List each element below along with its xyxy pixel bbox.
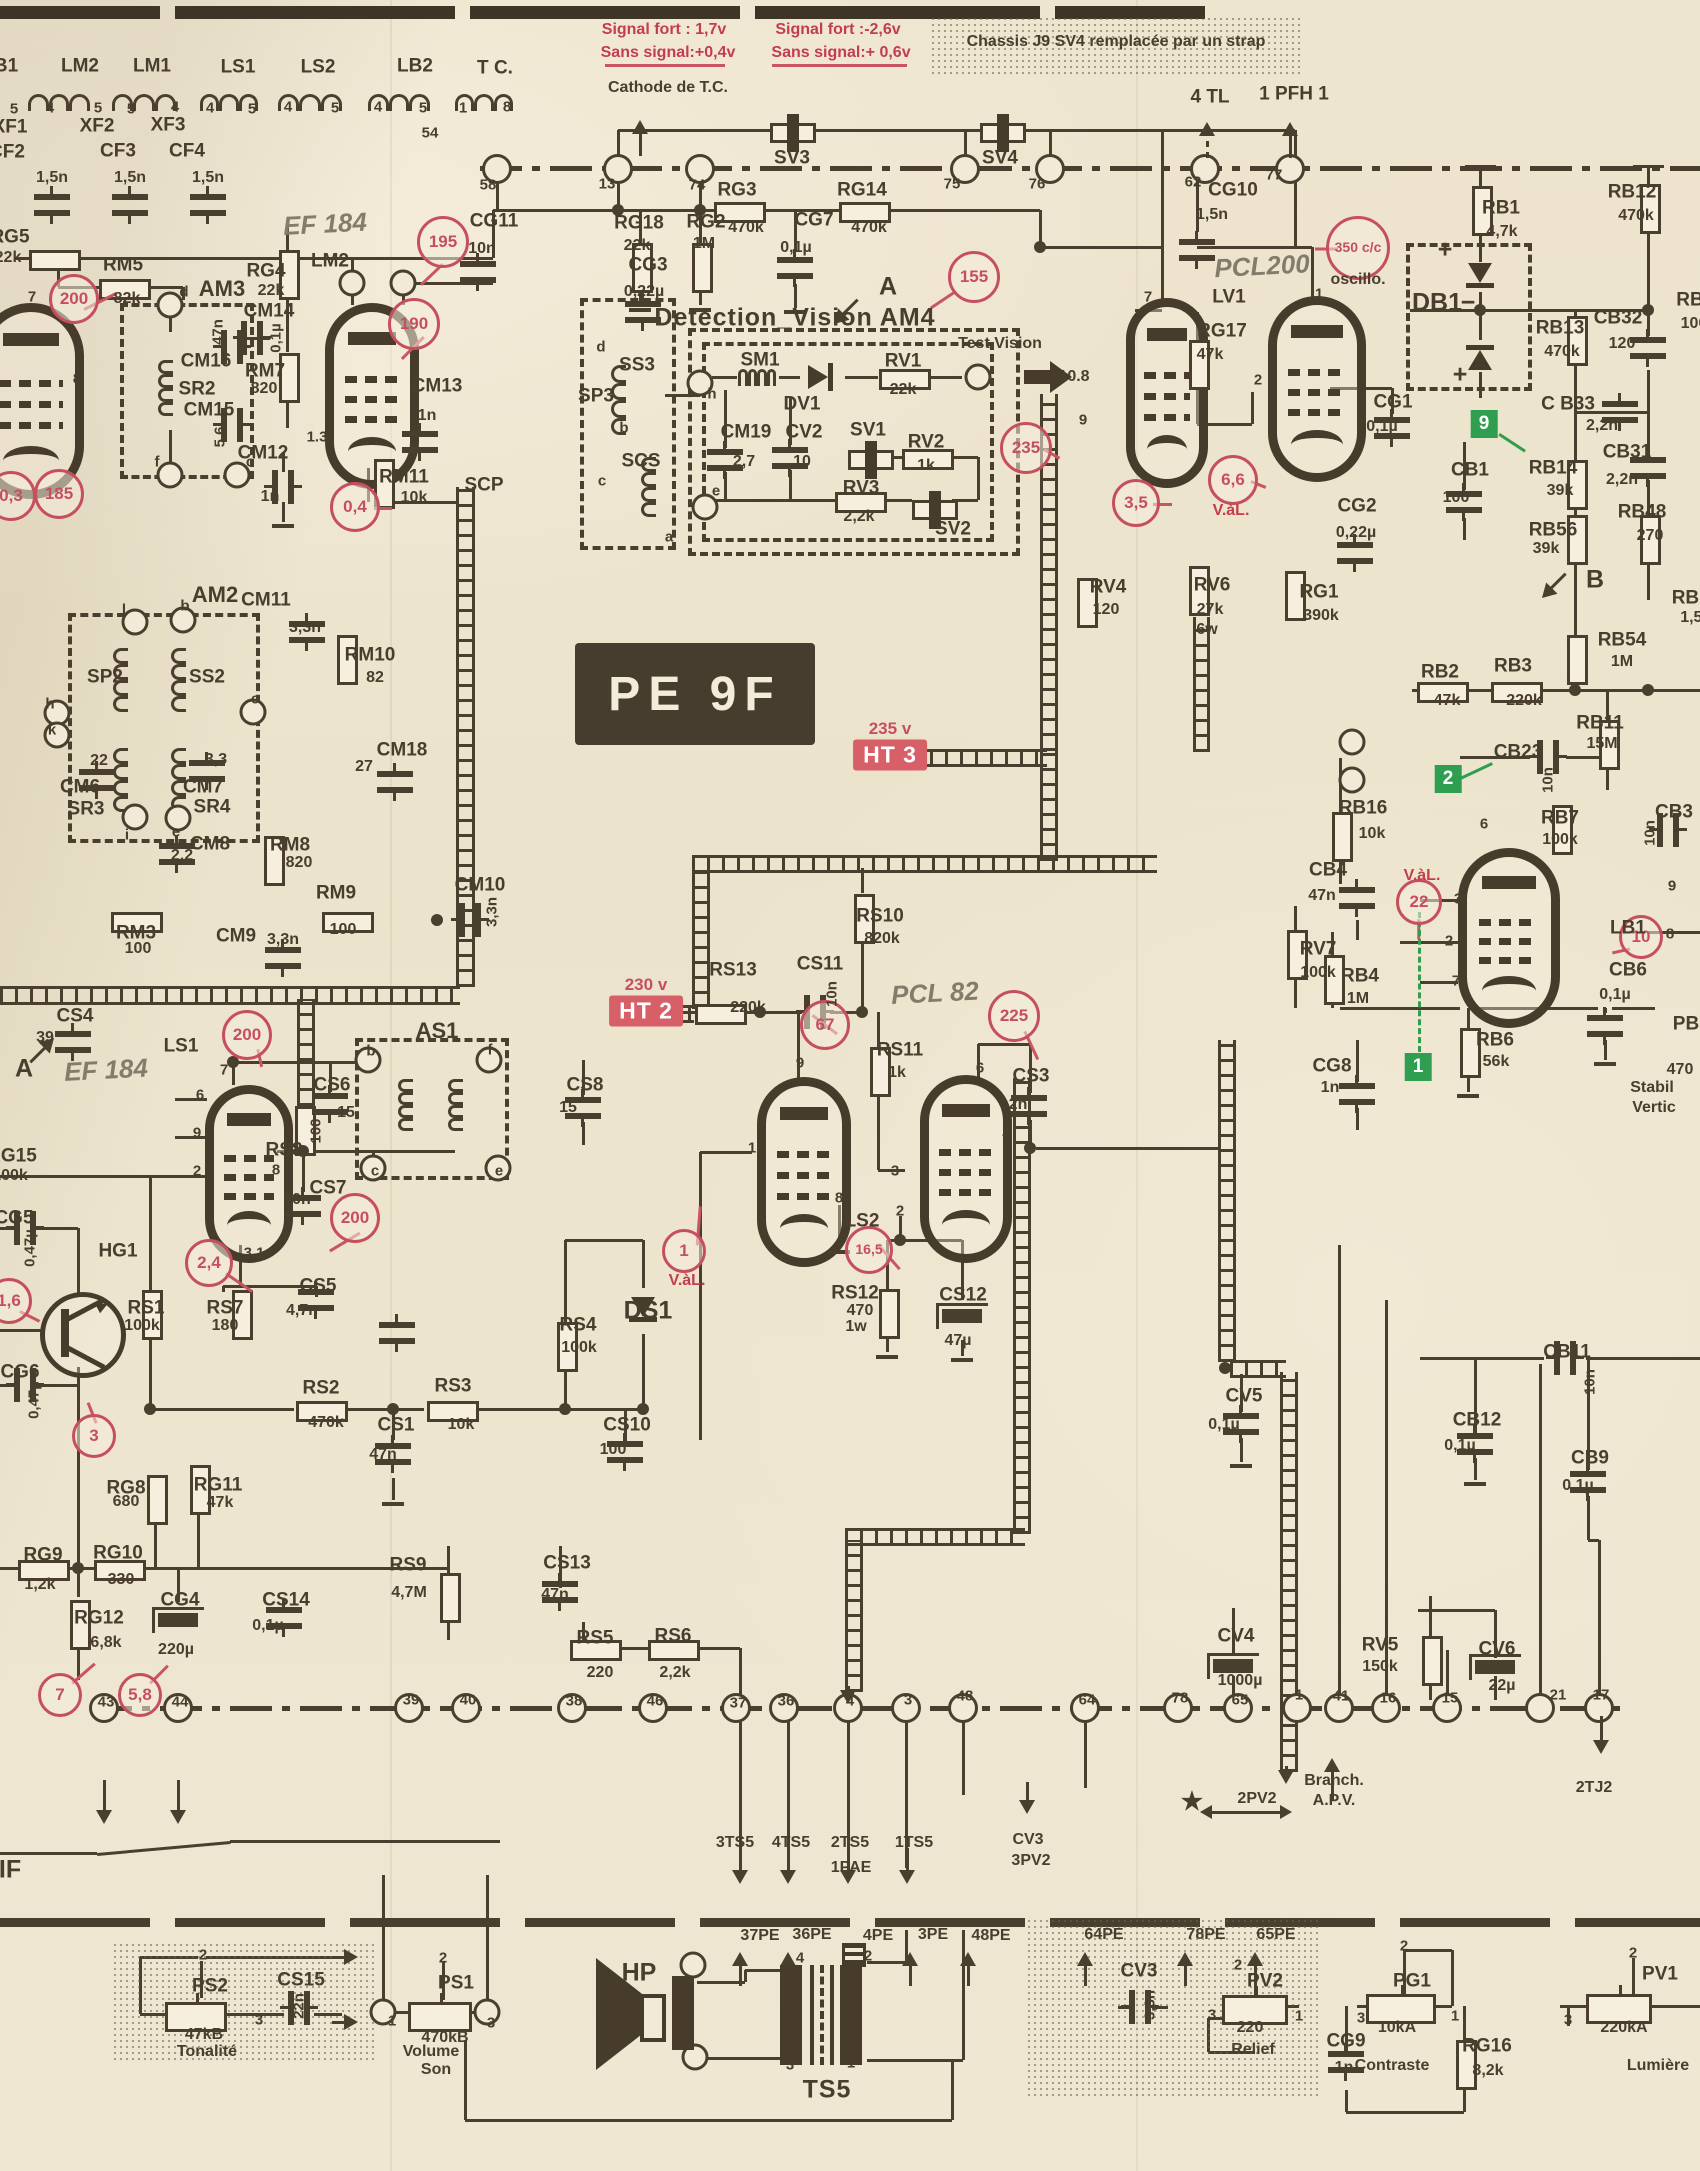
label-0-1-: 0,1µ <box>780 240 811 256</box>
label-0-22-: 0,22µ <box>624 284 664 300</box>
label-100: 100 <box>125 941 152 957</box>
junction-dot <box>1219 1362 1231 1374</box>
label-cm8: CM8 <box>190 834 230 853</box>
label-390k: 390k <box>1303 608 1339 624</box>
label-c: c <box>371 1163 379 1178</box>
label-48pe: 48PE <box>971 1928 1010 1944</box>
junction-dot <box>1642 684 1654 696</box>
label-22: 22 <box>90 753 108 769</box>
label-62: 62 <box>1185 174 1202 189</box>
label-2: 2 <box>1234 1957 1242 1972</box>
wire <box>564 1240 567 1326</box>
capacitor <box>1337 542 1373 564</box>
label-470k: 470k <box>728 220 764 236</box>
label-22k: 22k <box>890 382 917 398</box>
label-xf3: XF3 <box>151 115 186 134</box>
label-3: 3 <box>487 2015 495 2030</box>
label-330: 330 <box>108 1572 135 1588</box>
label-470: 470 <box>1667 1062 1694 1078</box>
label-22k: 22k <box>0 250 21 266</box>
wire <box>1084 1720 1087 1788</box>
resistor <box>1332 812 1353 862</box>
label-1-2k: 1,2k <box>24 1577 55 1593</box>
vacuum-tube <box>0 303 84 499</box>
label-10: 10 <box>793 454 811 470</box>
junction-dot <box>431 914 443 926</box>
label-rb7: RB7 <box>1541 808 1579 827</box>
label-470k: 470k <box>1618 208 1654 224</box>
wire <box>978 1043 1030 1046</box>
strap-symbol <box>848 450 894 470</box>
top-bus-segment <box>470 6 740 19</box>
testpoint-voltage: 2,4 <box>185 1239 233 1287</box>
label-0-1-: 0,1µ <box>1208 1417 1239 1433</box>
electrolytic-capacitor <box>1473 1658 1517 1676</box>
testpoint-voltage: 1 <box>662 1229 706 1273</box>
label-xf1: XF1 <box>0 117 27 136</box>
label-ls2: LS2 <box>845 1211 880 1230</box>
val-note: V.àL. <box>1404 868 1441 884</box>
label-a: A <box>879 274 897 300</box>
label-ss2: SS2 <box>189 667 225 686</box>
label-rv1: RV1 <box>885 351 922 370</box>
label-scp: SCP <box>464 475 503 494</box>
junction-dot <box>1569 684 1581 696</box>
red-underline <box>772 64 907 67</box>
capacitor <box>265 947 301 969</box>
label-rs6: RS6 <box>655 1626 692 1645</box>
label-22n: 22n <box>291 1993 306 2019</box>
wire <box>1463 518 1466 540</box>
label-2n: 2n <box>1009 1097 1028 1113</box>
label-15m: 15M <box>1586 736 1617 752</box>
relief-label: Relief <box>1231 2042 1275 2058</box>
label-rv3: RV3 <box>843 478 880 497</box>
label-rb1: RB1 <box>1482 198 1520 217</box>
label-f: f <box>155 454 160 469</box>
label-cb12: CB12 <box>1453 1410 1502 1429</box>
label-1n: 1n <box>261 489 280 505</box>
label-3ts5: 3TS5 <box>716 1835 754 1851</box>
electrolytic-capacitor <box>156 1611 200 1629</box>
label-sv1: SV1 <box>850 420 886 439</box>
lumiere-label: Lumière <box>1627 2058 1689 2074</box>
label-2: 2 <box>1400 1938 1408 1953</box>
label-cm11: CM11 <box>241 590 291 609</box>
label-4: 4 <box>796 1950 804 1965</box>
label-3: 3 <box>1208 2007 1216 2022</box>
wire <box>392 1478 395 1500</box>
label-5: 5 <box>127 101 135 116</box>
testpoint-voltage: 7 <box>38 1673 82 1717</box>
ground-bar <box>951 1358 973 1362</box>
label-am3: AM3 <box>199 278 245 300</box>
label-5: 5 <box>10 101 18 116</box>
label-100: 100 <box>308 1118 323 1143</box>
label-8: 8 <box>272 1162 280 1177</box>
label-cm13: CM13 <box>412 376 463 395</box>
label-db1: DB1 <box>1412 290 1462 316</box>
label-17: 17 <box>1593 1687 1610 1702</box>
label-6: 6 <box>1480 816 1488 831</box>
label-0-1-: 0,1µ <box>1562 1478 1593 1494</box>
capacitor <box>460 261 496 283</box>
label-82: 82 <box>366 670 384 686</box>
label-pcl200: PCL200 <box>1214 250 1311 281</box>
signal-note: Signal fort : 1,7v <box>602 22 726 38</box>
label-4: 4 <box>171 99 179 114</box>
label-39: 39 <box>403 1692 420 1707</box>
label-ef-184: EF 184 <box>63 1055 148 1086</box>
label-47n: 47n <box>541 1587 569 1603</box>
wire <box>1404 1949 1452 1952</box>
checkered-bus <box>1230 1360 1286 1378</box>
junction-dot <box>1474 304 1486 316</box>
label-sp3: SP3 <box>578 386 614 405</box>
label-37: 37 <box>730 1695 747 1710</box>
label-2: 2 <box>1254 372 1262 387</box>
green-leader <box>1498 433 1526 453</box>
label--: − <box>1461 290 1476 316</box>
label-2-2k: 2,2k <box>843 509 874 525</box>
ground-bar <box>629 308 651 312</box>
label-39k: 39k <box>1533 541 1560 557</box>
label-hg1: HG1 <box>98 1241 137 1260</box>
label-10k: 10k <box>448 1417 475 1433</box>
label-6: 6 <box>196 1087 204 1102</box>
capacitor <box>190 194 226 216</box>
label-cv6: CV6 <box>1479 1639 1516 1658</box>
connection-circle <box>1339 767 1366 794</box>
label-21: 21 <box>1550 1687 1567 1702</box>
capacitor <box>1339 1083 1375 1105</box>
label-e: e <box>495 1163 503 1178</box>
wire <box>222 1286 225 1292</box>
label-cb4: CB4 <box>1309 860 1347 879</box>
val-note: V.àL. <box>1213 503 1250 519</box>
label-sr3: SR3 <box>68 799 105 818</box>
label-7: 7 <box>1144 289 1152 304</box>
label-sr4: SR4 <box>194 797 231 816</box>
testpoint-voltage: 200 <box>49 274 99 324</box>
label-ls2: LS2 <box>301 57 336 76</box>
wire <box>97 1841 230 1856</box>
label-am2: AM2 <box>192 584 238 606</box>
label-rs2: RS2 <box>303 1378 340 1397</box>
label-0-1-: 0,1µ <box>1366 419 1397 435</box>
wire <box>1560 2005 1586 2008</box>
label-cv2: CV2 <box>786 422 823 441</box>
wire <box>565 1239 643 1242</box>
green-index-mark: 2 <box>1435 765 1462 793</box>
wire <box>0 1852 97 1855</box>
label-sm1: SM1 <box>740 350 779 369</box>
label-40: 40 <box>460 1692 477 1707</box>
label-10k: 10k <box>1359 826 1386 842</box>
wire <box>962 1720 965 1795</box>
checkered-bus <box>692 855 1157 873</box>
potentiometer <box>408 2002 472 2032</box>
label-820k: 820k <box>864 931 900 947</box>
checkered-bus <box>1218 1040 1236 1362</box>
label-820: 820 <box>286 855 313 871</box>
label-rg10: RG10 <box>93 1543 143 1562</box>
label-cf4: CF4 <box>169 141 205 160</box>
wire <box>1574 600 1577 636</box>
label-220-: 220µ <box>158 1642 194 1658</box>
label-10ka: 10kA <box>1378 2020 1416 2036</box>
label-7: 7 <box>1002 1132 1010 1147</box>
connection-circle <box>965 364 992 391</box>
label-cm9: CM9 <box>216 926 256 945</box>
label-4-7k: 4,7k <box>1486 224 1517 240</box>
label-470k: 470k <box>308 1415 344 1431</box>
strap-symbol <box>980 123 1026 143</box>
label-rv6: RV6 <box>1194 575 1231 594</box>
label-1-5n: 1,5n <box>36 170 68 186</box>
label-cb6: CB6 <box>1609 960 1647 979</box>
label-rs13: RS13 <box>709 960 757 979</box>
label-100: 100 <box>1681 316 1700 332</box>
label-cg1: CG1 <box>1373 392 1412 411</box>
wire <box>1345 2090 1348 2112</box>
label-3-3n: 3,3n <box>289 620 321 636</box>
label-rg14: RG14 <box>837 180 887 199</box>
transistor-hg1 <box>40 1292 126 1378</box>
label-cv5: CV5 <box>1226 1386 1263 1405</box>
electrolytic-capacitor <box>940 1307 984 1325</box>
ht-supply-badge: HT 2 <box>609 996 683 1027</box>
wire <box>1338 1245 1341 1700</box>
capacitor <box>459 903 481 937</box>
junction-dot <box>144 1403 156 1415</box>
label-2: 2 <box>439 1950 447 1965</box>
label-65pe: 65PE <box>1256 1927 1295 1943</box>
wire <box>1340 1007 1460 1010</box>
label-rv5: RV5 <box>1362 1635 1399 1654</box>
label-rs9: RS9 <box>390 1555 427 1574</box>
signal-note: Signal fort :-2,6v <box>775 22 900 38</box>
label-22-: 22µ <box>1488 1678 1515 1694</box>
schematic-canvas: PE 9F 2001850,31951900,41552353,56,6350 … <box>0 0 1700 2171</box>
label-8: 8 <box>835 1190 843 1205</box>
label-rb4: RB4 <box>1341 966 1379 985</box>
testpoint-voltage: 3 <box>72 1414 116 1458</box>
label-rg17: RG17 <box>1197 321 1247 340</box>
label-47-: 47µ <box>944 1333 971 1349</box>
label-cs7: CS7 <box>310 1178 347 1197</box>
ground-bar <box>1457 1094 1479 1098</box>
label-1: 1 <box>1451 2008 1459 2023</box>
label-rg12: RG12 <box>74 1608 124 1627</box>
label-27k: 27k <box>1197 602 1224 618</box>
label-b: b <box>619 420 628 435</box>
capacitor <box>34 194 70 216</box>
label-rg15: RG15 <box>0 1146 37 1165</box>
label-470k: 470k <box>1544 344 1580 360</box>
cathode-note: Cathode de T.C. <box>608 80 728 96</box>
label-cs1: CS1 <box>378 1415 415 1434</box>
label-rs8: RS8 <box>266 1140 303 1159</box>
label-rm7: RM7 <box>245 361 285 380</box>
label-5: 5 <box>248 101 256 116</box>
label-47n: 47n <box>369 1447 397 1463</box>
label-ds1: DS1 <box>624 1298 673 1324</box>
label-100k: 100k <box>0 1168 28 1184</box>
label-100k: 100k <box>124 1318 160 1334</box>
diode <box>1466 263 1494 291</box>
label-cb9: CB9 <box>1571 1448 1609 1467</box>
label-120: 120 <box>1093 602 1120 618</box>
label-1n: 1n <box>1321 1080 1340 1096</box>
label-15: 15 <box>559 1100 577 1116</box>
wire <box>1612 1007 1655 1010</box>
wire <box>465 2119 952 2122</box>
resistor <box>440 1573 461 1623</box>
wire <box>861 940 864 1012</box>
label-rg4: RG4 <box>246 261 285 280</box>
label-4-7n: 4,7n <box>286 1303 318 1319</box>
label-rs1: RS1 <box>128 1298 165 1317</box>
label-8-2k: 8,2k <box>1472 2063 1503 2079</box>
wire <box>464 2040 467 2120</box>
label-8: 8 <box>73 371 81 386</box>
label-sv3: SV3 <box>774 148 810 167</box>
chassis-strap-note: Chassis J9 SV4 remplacée par un strap <box>967 34 1266 50</box>
label-47n: 47n <box>210 319 225 345</box>
checkered-bus <box>915 749 1047 767</box>
winding <box>398 1079 412 1131</box>
label-rb11: RB11 <box>1576 713 1624 732</box>
label-2ts5: 2TS5 <box>831 1835 869 1851</box>
label-4: 4 <box>284 99 292 114</box>
wire <box>1040 246 1162 249</box>
label-cg10: CG10 <box>1208 180 1258 199</box>
val-note: V.àL. <box>669 1273 706 1289</box>
label-1-pfh-1: 1 PFH 1 <box>1259 84 1329 103</box>
label-16: 16 <box>1380 1690 1397 1705</box>
wire <box>1586 1357 1700 1360</box>
label-270: 270 <box>1637 528 1664 544</box>
wire <box>642 1240 645 1288</box>
wire <box>1036 1147 1218 1150</box>
label-1-5n: 1,5n <box>114 170 146 186</box>
wire <box>642 1334 645 1409</box>
label-0-1-: 0,1µ <box>252 1618 283 1634</box>
label-c-b33: C B33 <box>1541 394 1595 413</box>
label-cf3: CF3 <box>100 141 136 160</box>
label--: + <box>1438 237 1453 263</box>
wire <box>1587 1496 1590 1540</box>
label-cm15: CM15 <box>184 400 235 419</box>
label-rb3: RB3 <box>1494 656 1532 675</box>
label-cm14: CM14 <box>244 301 295 320</box>
label-rb56: RB56 <box>1529 520 1578 539</box>
capacitor <box>402 431 438 453</box>
oscillo-label: oscillo. <box>1330 272 1385 288</box>
wire <box>1356 920 1359 940</box>
label-4: 4 <box>46 100 54 115</box>
label-9: 9 <box>1079 412 1087 427</box>
label-5: 5 <box>331 100 339 115</box>
ht-voltage: 230 v <box>625 975 668 995</box>
wire <box>1420 1357 1544 1360</box>
label-cs6: CS6 <box>314 1075 351 1094</box>
vacuum-tube <box>757 1077 851 1267</box>
label-rv7: RV7 <box>1300 939 1337 958</box>
label-rb12: RB12 <box>1608 182 1657 201</box>
strap-symbol <box>770 123 816 143</box>
label-46: 46 <box>647 1693 664 1708</box>
label-120: 120 <box>1609 336 1636 352</box>
speaker-hp <box>596 1958 660 2070</box>
label-rb16: RB16 <box>1339 798 1388 817</box>
label-1: 1 <box>1295 1687 1303 1702</box>
resistor <box>1422 1636 1443 1686</box>
label-cb3: CB3 <box>1655 802 1693 821</box>
label-cb32: CB32 <box>1594 308 1643 327</box>
ht-voltage: 235 v <box>869 719 912 739</box>
label-cs11: CS11 <box>797 954 843 973</box>
strap-symbol <box>912 500 958 520</box>
diode <box>808 363 836 391</box>
label-rb13: RB13 <box>1536 318 1585 337</box>
label-cs13: CS13 <box>543 1553 591 1572</box>
connection-circle <box>1339 729 1366 756</box>
label-75: 75 <box>944 176 961 191</box>
capacitor <box>777 257 813 279</box>
capacitor <box>377 771 413 793</box>
label-6-8k: 6,8k <box>90 1635 121 1651</box>
label-lb1: LB1 <box>1610 918 1646 937</box>
label-a: A <box>15 1056 33 1082</box>
label-64: 64 <box>1079 1692 1096 1707</box>
label-1k: 1k <box>888 1065 906 1081</box>
label-2: 2 <box>193 1163 201 1178</box>
label-3: 3 <box>1454 891 1462 906</box>
wire <box>1632 1958 1635 1994</box>
detection-vision-title: Detection_Vision AM4 <box>654 305 935 331</box>
checkered-bus <box>692 867 710 1009</box>
label-100: 100 <box>1443 490 1470 506</box>
label-3-1: 3.1 <box>244 1245 265 1260</box>
label-pb: PB <box>1673 1014 1699 1033</box>
label-48: 48 <box>957 1688 974 1703</box>
label-2-2: 2,2 <box>171 848 193 864</box>
wire <box>745 1969 780 1972</box>
label-1000-: 1000µ <box>1218 1673 1263 1689</box>
label-2: 2 <box>199 1947 207 1962</box>
label-1-5m: 1,5M <box>1680 610 1700 626</box>
label-cs15: CS15 <box>277 1970 325 1989</box>
label-13: 13 <box>599 176 616 191</box>
checkered-bus <box>1040 751 1058 861</box>
label-44: 44 <box>172 1694 189 1709</box>
label-3-3n: 3,3n <box>484 897 499 927</box>
wire <box>1346 2111 1464 2114</box>
label-39k: 39k <box>1547 483 1574 499</box>
label-9: 9 <box>193 1125 201 1140</box>
wire <box>1429 1596 1432 1640</box>
label-lv1: LV1 <box>1212 287 1245 306</box>
label-78pe: 78PE <box>1186 1927 1225 1943</box>
label-cg6: CG6 <box>0 1362 39 1381</box>
label-d: d <box>179 284 188 299</box>
label-cg5: CG5 <box>0 1208 34 1227</box>
testpoint-voltage: 1,6 <box>0 1278 32 1324</box>
model-badge: PE 9F <box>577 645 813 743</box>
label-sv4: SV4 <box>982 148 1018 167</box>
